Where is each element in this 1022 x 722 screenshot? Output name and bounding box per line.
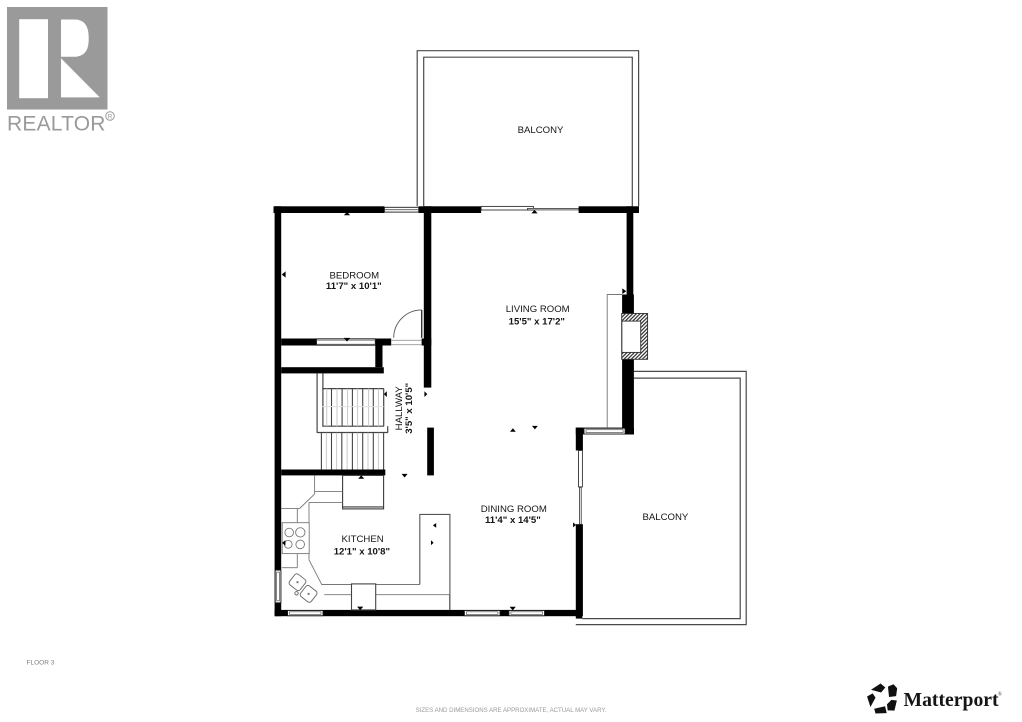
svg-text:BALCONY: BALCONY [518,125,564,136]
svg-text:11'7" x 10'1": 11'7" x 10'1" [326,281,382,292]
svg-text:LIVING ROOM: LIVING ROOM [506,304,570,315]
svg-text:BEDROOM: BEDROOM [330,271,380,282]
svg-text:FLOOR 3: FLOOR 3 [27,660,55,667]
svg-text:®: ® [998,692,1002,698]
svg-text:DINING ROOM: DINING ROOM [481,504,547,515]
svg-text:11'4" x 14'5": 11'4" x 14'5" [485,515,541,526]
svg-text:Matterport: Matterport [904,689,1000,711]
svg-text:R: R [108,113,113,120]
svg-text:3'5" x 10'5": 3'5" x 10'5" [404,383,415,434]
svg-text:REALTOR: REALTOR [7,113,106,136]
svg-text:BALCONY: BALCONY [642,512,688,523]
svg-text:12'1" x 10'8": 12'1" x 10'8" [334,547,390,558]
svg-text:KITCHEN: KITCHEN [342,534,384,545]
svg-text:15'5" x 17'2": 15'5" x 17'2" [509,317,565,328]
svg-text:SIZES AND DIMENSIONS ARE APPRO: SIZES AND DIMENSIONS ARE APPROXIMATE, AC… [416,707,607,714]
